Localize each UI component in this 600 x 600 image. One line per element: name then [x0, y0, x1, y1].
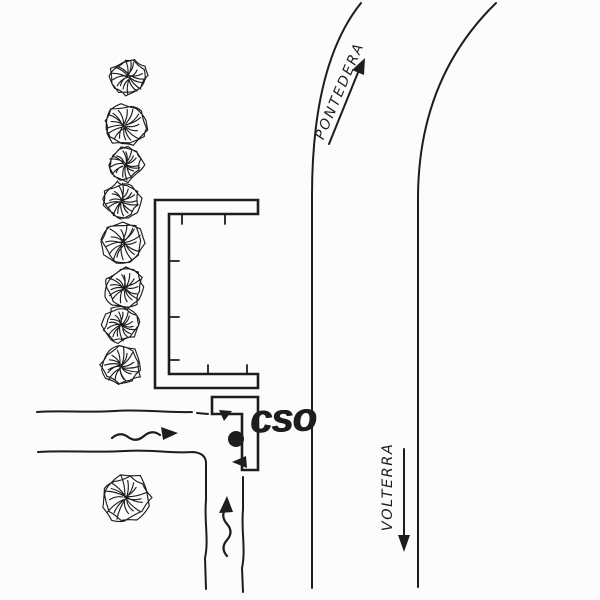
cso-marker: [228, 431, 244, 447]
tree-icon: [105, 267, 144, 310]
flow-arrow-east-head-icon: [161, 427, 178, 440]
main-road-right-edge: [418, 3, 496, 587]
tree-icon: [101, 307, 139, 344]
tree-row: [100, 60, 148, 385]
hand-drawn-map: PONTEDERA VOLTERRA cso: [0, 0, 600, 600]
flow-arrow-north-line: [223, 508, 230, 556]
single-tree: [103, 475, 152, 522]
building-wall-ticks: [169, 214, 247, 374]
label-volterra: VOLTERRA: [380, 443, 396, 532]
tree-icon: [101, 222, 145, 263]
side-road-top-edge: [37, 410, 208, 414]
tree-icon: [109, 60, 148, 96]
street-right-edge: [242, 477, 244, 592]
tree-icon: [103, 475, 152, 522]
tree-icon: [105, 104, 148, 146]
flow-arrow-north-head-icon: [219, 496, 233, 513]
building: [155, 200, 258, 388]
map-drawing: [0, 0, 600, 600]
volterra-arrow-head-icon: [398, 535, 410, 552]
tree-icon: [103, 181, 142, 219]
flow-arrow-east-line: [112, 432, 160, 440]
label-cso: cso: [249, 395, 316, 442]
destination-arrows: [329, 58, 410, 552]
entrance-arrow-down-icon: [219, 410, 232, 421]
tree-icon: [100, 346, 140, 385]
tree-icon: [109, 147, 145, 183]
entrance-arrow-left-icon: [232, 456, 247, 468]
